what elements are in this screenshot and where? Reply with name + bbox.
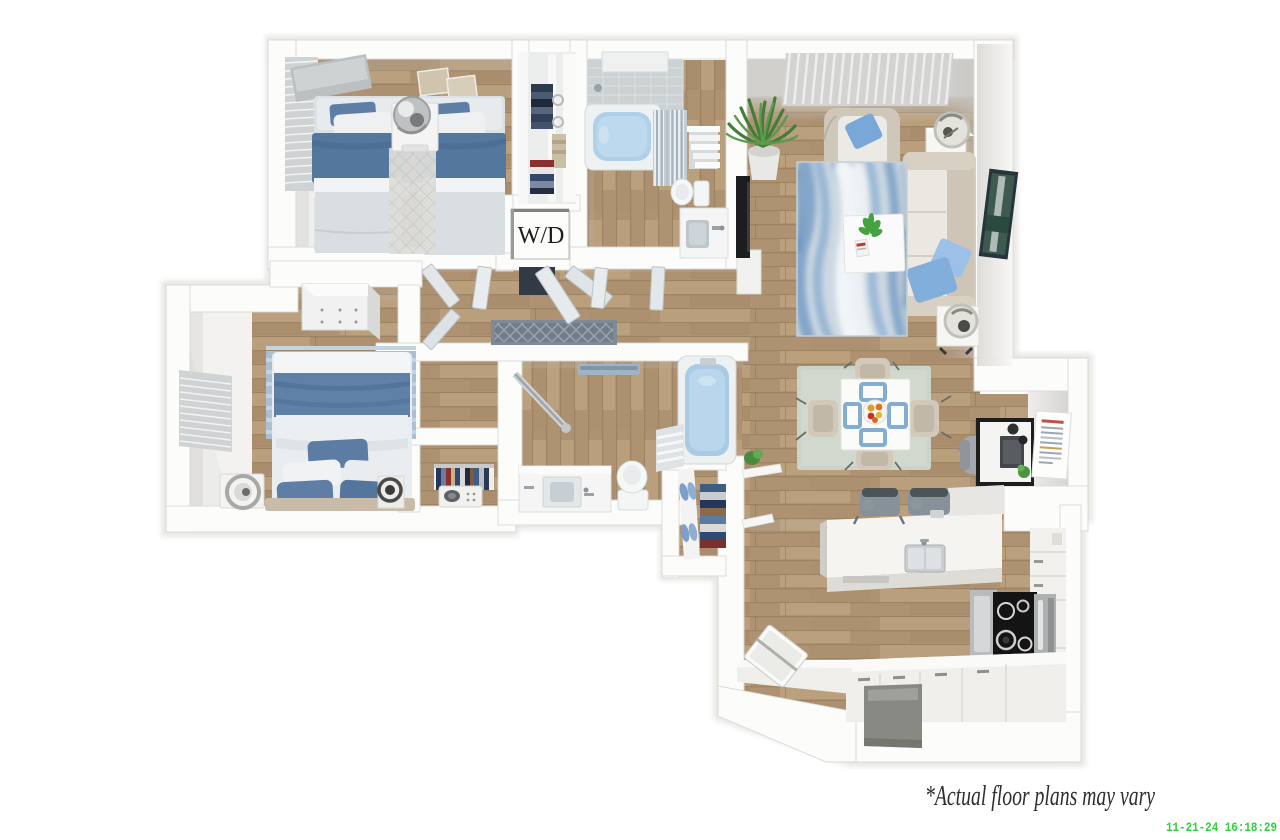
svg-text:11-21-24 16:18:29: 11-21-24 16:18:29 (1166, 821, 1277, 835)
svg-text:*Actual floor plans may vary: *Actual floor plans may vary (925, 780, 1155, 812)
svg-text:W/D: W/D (518, 223, 565, 249)
